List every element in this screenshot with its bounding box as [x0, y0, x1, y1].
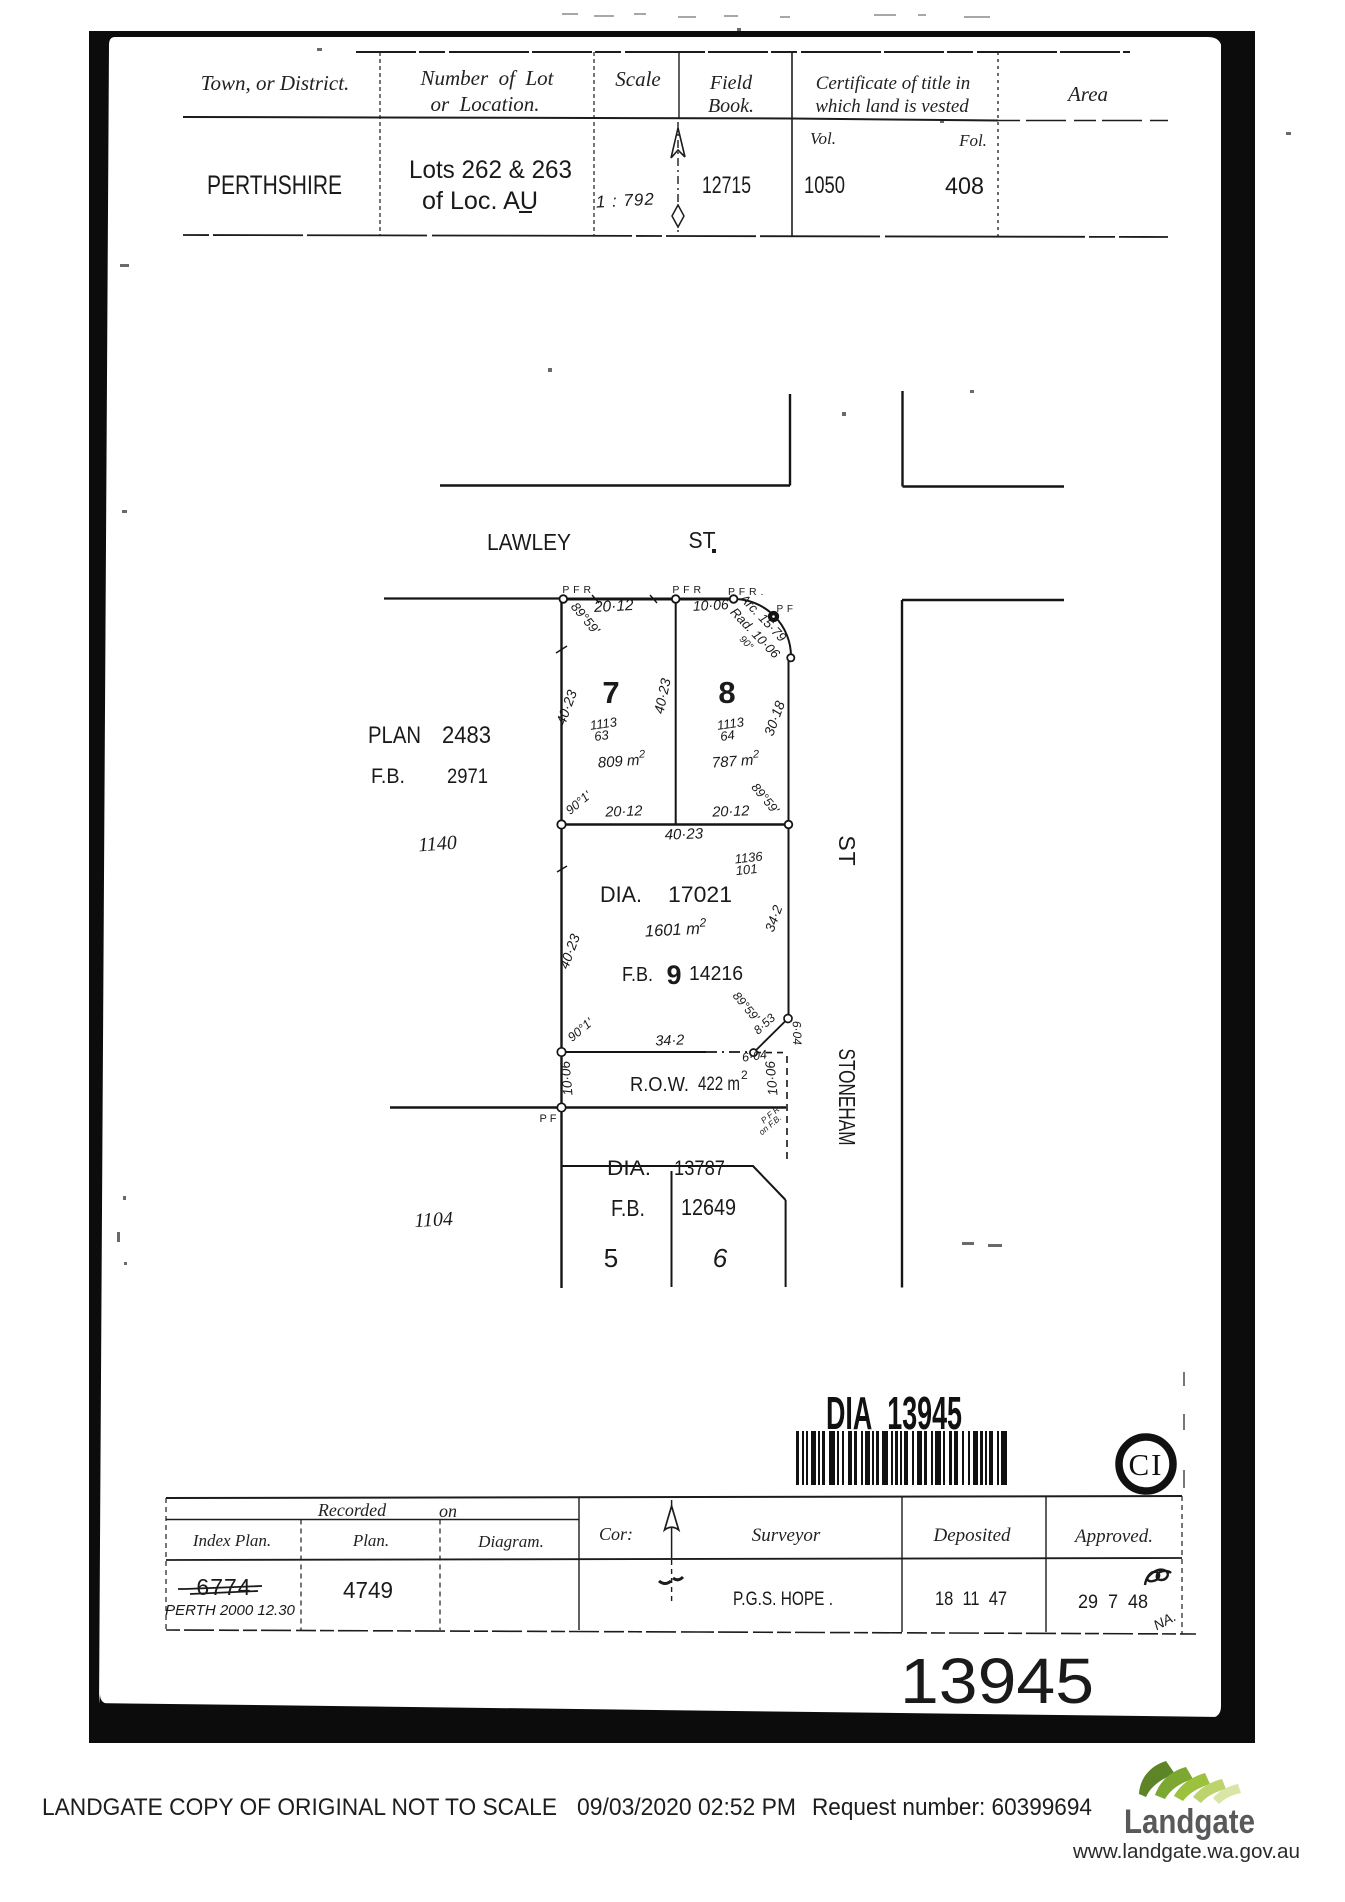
svg-text:PERTHSHIRE: PERTHSHIRE — [207, 170, 342, 200]
svg-text:F.B.: F.B. — [371, 765, 405, 788]
svg-text:89°59': 89°59' — [748, 780, 782, 816]
svg-text:12649: 12649 — [681, 1194, 736, 1220]
svg-text:LANDGATE COPY OF ORIGINAL NOT: LANDGATE COPY OF ORIGINAL NOT TO SCALE — [42, 1794, 557, 1821]
svg-text:Book.: Book. — [708, 95, 754, 117]
svg-text:13945: 13945 — [900, 1645, 1094, 1717]
svg-text:1140: 1140 — [418, 832, 458, 857]
svg-text:1 : 792: 1 : 792 — [595, 190, 654, 212]
svg-text:PERTH 2000 12.30: PERTH 2000 12.30 — [165, 1602, 295, 1619]
svg-text:P.G.S. HOPE .: P.G.S. HOPE . — [733, 1589, 833, 1610]
svg-text:Landgate: Landgate — [1124, 1803, 1255, 1841]
svg-text:8: 8 — [718, 675, 735, 710]
svg-text:9: 9 — [666, 960, 681, 990]
svg-text:F.B.: F.B. — [622, 964, 653, 986]
svg-text:STONEHAM: STONEHAM — [834, 1049, 860, 1146]
svg-text:F.B.: F.B. — [611, 1195, 645, 1221]
svg-text:101: 101 — [735, 861, 758, 878]
svg-text:Area: Area — [1066, 82, 1108, 106]
svg-text:10·06: 10·06 — [692, 596, 729, 614]
svg-text:90°1': 90°1' — [563, 788, 594, 817]
svg-text:P F R: P F R — [562, 584, 591, 596]
svg-text:17021: 17021 — [668, 882, 732, 907]
svg-text:10·06: 10·06 — [557, 1060, 575, 1096]
svg-text:4749: 4749 — [343, 1577, 393, 1603]
svg-text:Fol.: Fol. — [958, 131, 987, 150]
svg-text:5: 5 — [604, 1243, 618, 1273]
svg-text:Vol.: Vol. — [810, 129, 836, 148]
svg-text:ST: ST — [689, 527, 716, 553]
svg-text:90°1': 90°1' — [565, 1015, 596, 1044]
svg-text:18 11 47: 18 11 47 — [935, 1589, 1007, 1610]
svg-text:1050: 1050 — [804, 172, 845, 199]
svg-text:10·06: 10·06 — [762, 1060, 780, 1096]
svg-text:DIA.: DIA. — [600, 882, 642, 907]
svg-text:40·23: 40·23 — [556, 932, 583, 971]
svg-text:63: 63 — [593, 727, 610, 744]
svg-text:Number of Lot: Number of Lot — [419, 66, 554, 90]
svg-text:Plan.: Plan. — [352, 1531, 389, 1550]
svg-text:Surveyor: Surveyor — [752, 1525, 821, 1546]
svg-text:422 m: 422 m — [698, 1074, 740, 1095]
svg-text:1104: 1104 — [414, 1208, 454, 1232]
svg-text:Diagram.: Diagram. — [477, 1532, 544, 1551]
svg-text:DIA 13945: DIA 13945 — [826, 1387, 962, 1439]
svg-text:29 7 48: 29 7 48 — [1078, 1592, 1148, 1613]
svg-text:14216: 14216 — [689, 963, 743, 985]
svg-text:which land is vested: which land is vested — [815, 96, 969, 117]
svg-text:30·18: 30·18 — [761, 699, 788, 738]
svg-text:P F: P F — [540, 1113, 557, 1125]
svg-text:7: 7 — [602, 675, 619, 710]
svg-text:or Location.: or Location. — [430, 92, 539, 116]
svg-text:Lots 262 & 263: Lots 262 & 263 — [409, 156, 572, 184]
svg-text:CI: CI — [1129, 1447, 1164, 1482]
svg-text:787 m2: 787 m2 — [711, 748, 760, 771]
svg-text:Approved.: Approved. — [1073, 1526, 1153, 1547]
svg-text:DIA.: DIA. — [607, 1157, 651, 1180]
svg-text:Certificate of title in: Certificate of title in — [816, 73, 971, 94]
svg-text:12715: 12715 — [702, 172, 751, 199]
svg-text:1601 m2: 1601 m2 — [644, 915, 707, 940]
svg-text:Cor:: Cor: — [599, 1524, 633, 1544]
svg-text:Deposited: Deposited — [932, 1525, 1011, 1546]
svg-text:Scale: Scale — [615, 67, 660, 91]
svg-text:20·12: 20·12 — [593, 597, 635, 616]
svg-text:Recorded: Recorded — [317, 1500, 387, 1520]
svg-text:34·2: 34·2 — [762, 903, 786, 934]
svg-text:20·12: 20·12 — [711, 803, 750, 820]
svg-text:Field: Field — [709, 72, 753, 94]
svg-text:34·2: 34·2 — [655, 1033, 685, 1050]
svg-text:40·23: 40·23 — [553, 688, 580, 727]
svg-text:of Loc. AU: of Loc. AU — [422, 187, 538, 215]
svg-text:6: 6 — [713, 1243, 728, 1273]
svg-text:13787: 13787 — [674, 1157, 725, 1180]
svg-text:NA.: NA. — [1151, 1608, 1179, 1633]
svg-text:40·23: 40·23 — [664, 825, 704, 843]
svg-text:PLAN: PLAN — [368, 722, 421, 749]
svg-text:809 m2: 809 m2 — [597, 748, 646, 771]
svg-text:64: 64 — [719, 727, 735, 744]
svg-text:20·12: 20·12 — [604, 803, 643, 820]
svg-text:ST: ST — [834, 835, 860, 866]
svg-text:Index Plan.: Index Plan. — [192, 1531, 271, 1550]
svg-text:2971: 2971 — [447, 765, 488, 788]
svg-text:www.landgate.wa.gov.au: www.landgate.wa.gov.au — [1072, 1840, 1300, 1863]
svg-text:40·23: 40·23 — [651, 677, 674, 716]
svg-text:408: 408 — [945, 173, 984, 200]
svg-text:P F: P F — [777, 604, 794, 615]
svg-text:89°59': 89°59' — [730, 989, 763, 1024]
svg-text:2483: 2483 — [442, 722, 491, 749]
svg-text:2: 2 — [741, 1068, 748, 1082]
svg-text:on: on — [439, 1501, 457, 1521]
svg-text:P F R: P F R — [672, 584, 701, 596]
svg-text:R.O.W.: R.O.W. — [630, 1074, 689, 1096]
svg-text:Town, or District.: Town, or District. — [201, 71, 350, 95]
svg-text:6·04: 6·04 — [790, 1021, 805, 1046]
svg-text:LAWLEY: LAWLEY — [487, 529, 571, 555]
svg-text:Request number: 60399694: Request number: 60399694 — [812, 1794, 1092, 1821]
svg-text:09/03/2020 02:52 PM: 09/03/2020 02:52 PM — [577, 1794, 796, 1821]
